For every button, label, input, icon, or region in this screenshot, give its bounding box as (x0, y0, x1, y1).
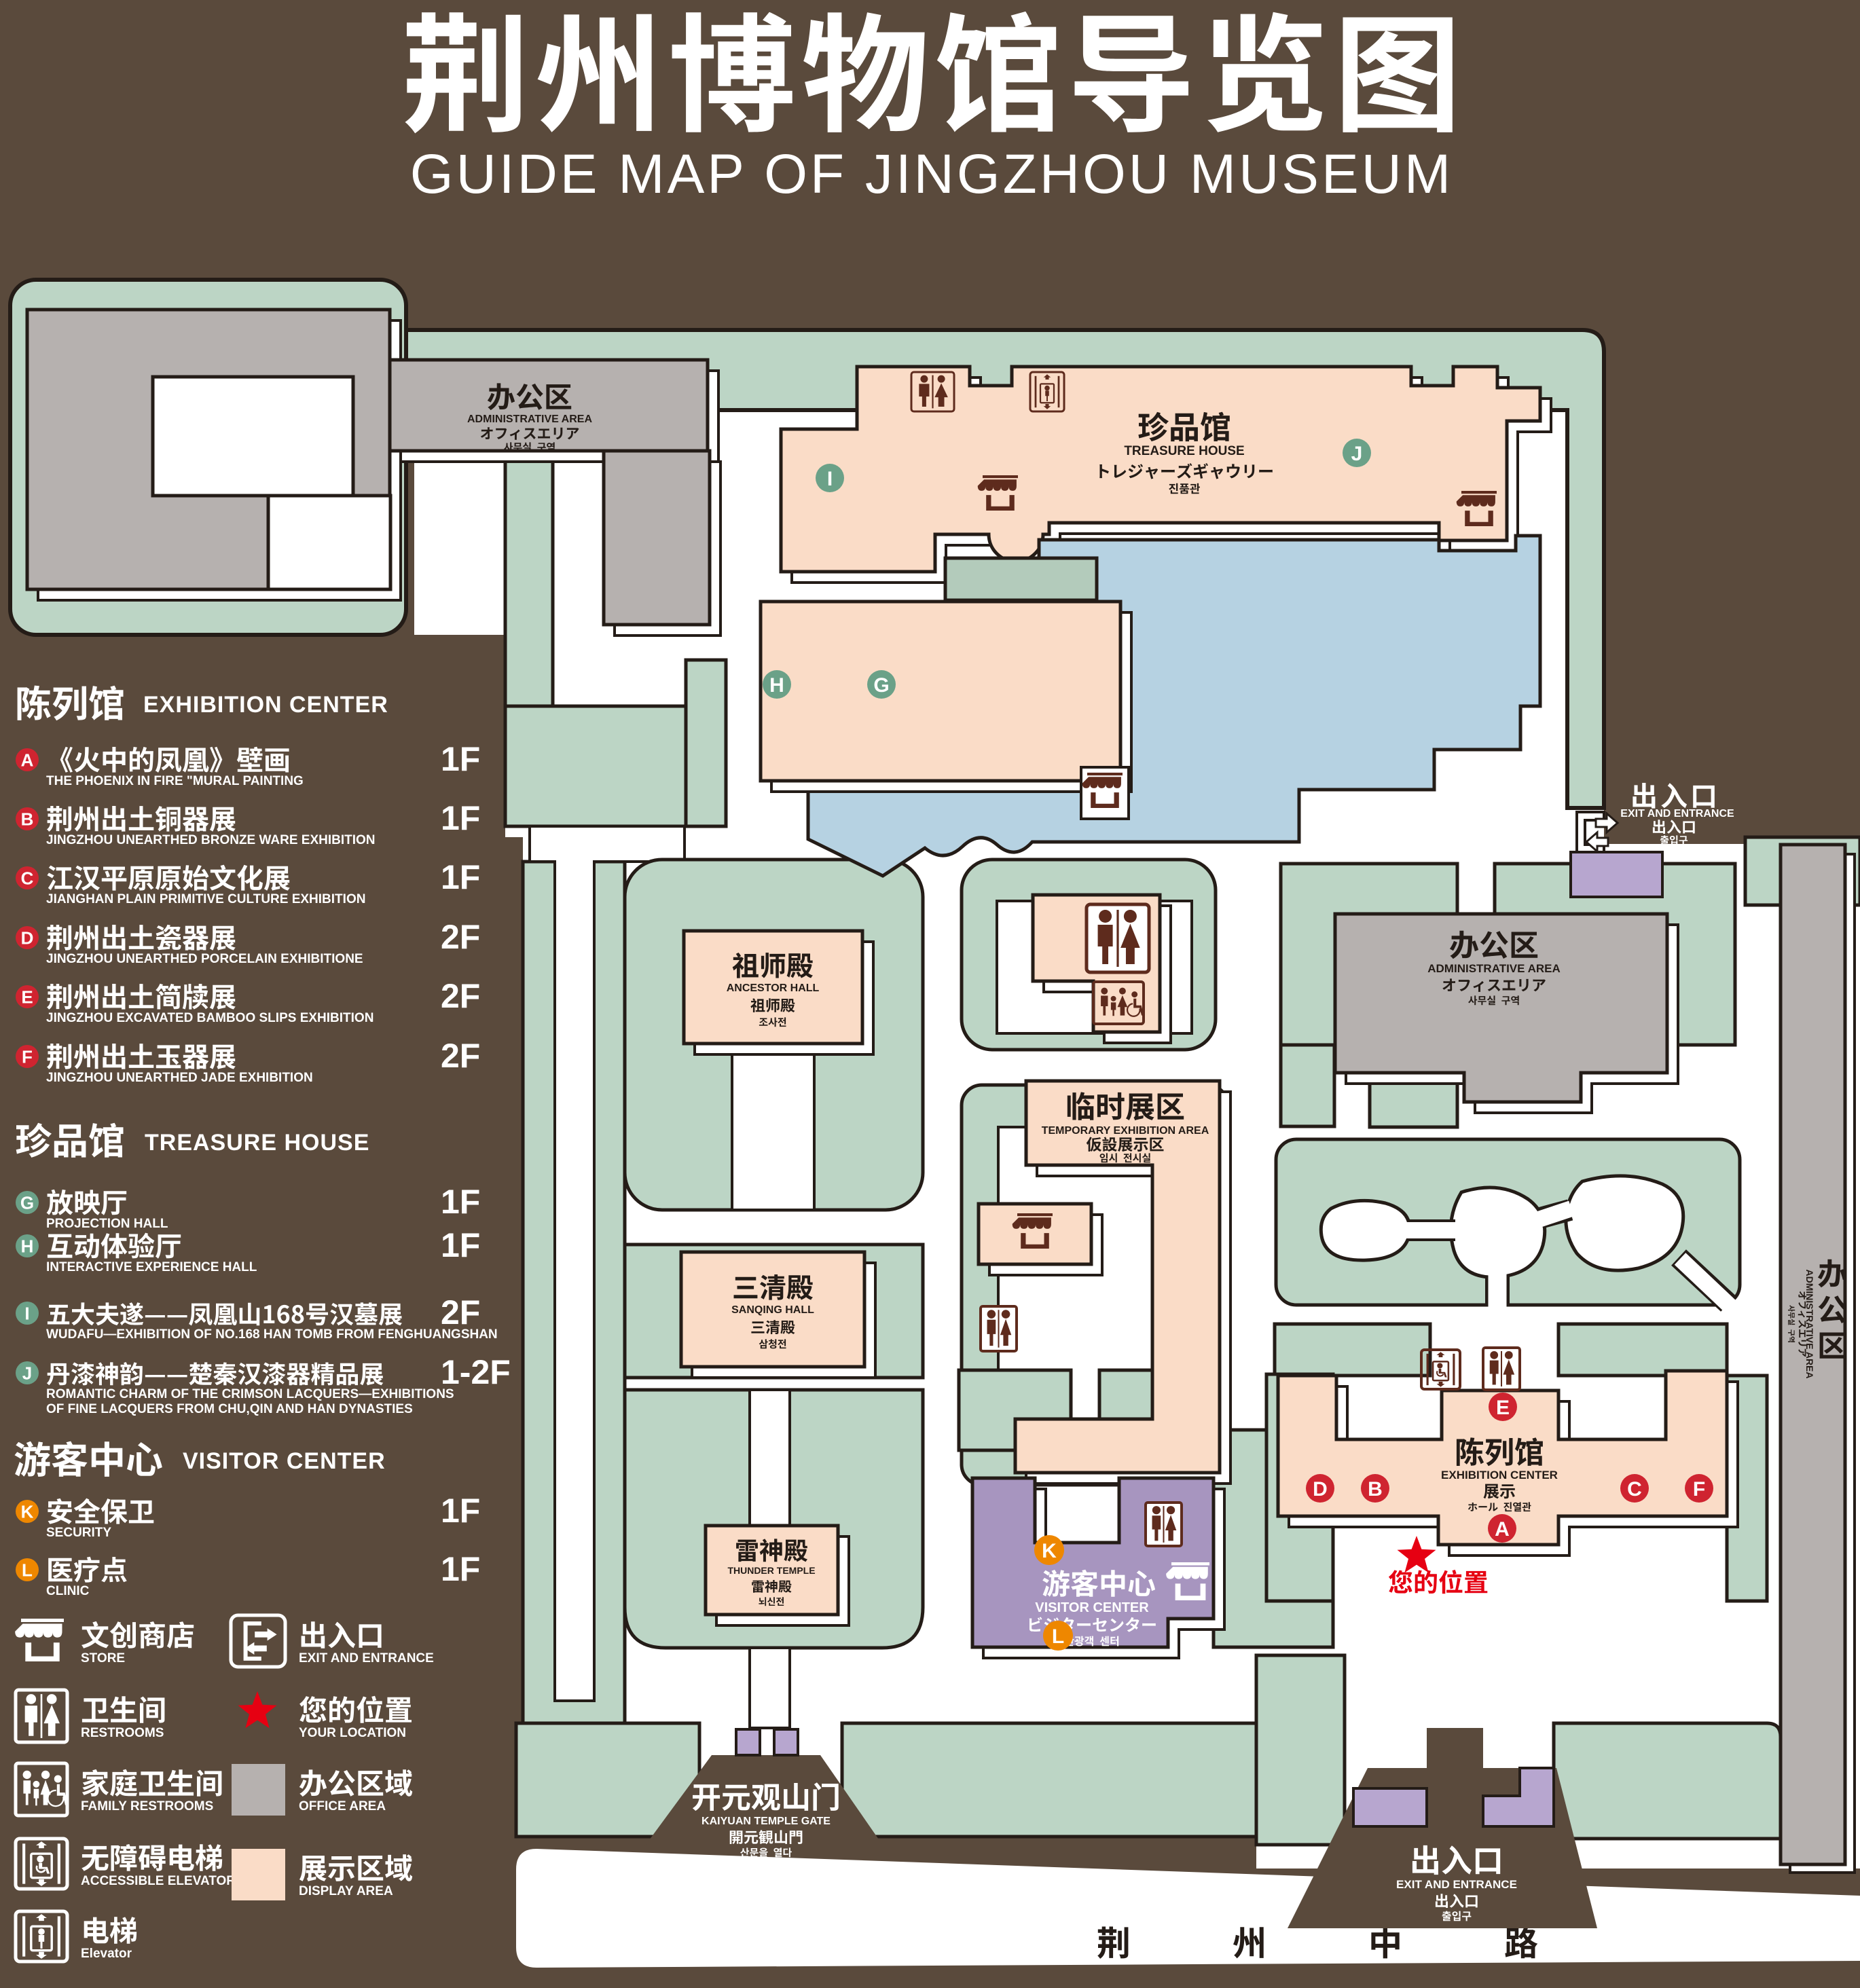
svg-text:EXIT AND ENTRANCE: EXIT AND ENTRANCE (299, 1651, 434, 1665)
svg-text:JINGZHOU UNEARTHED PORCELAIN E: JINGZHOU UNEARTHED PORCELAIN EXHIBITIONE (46, 952, 363, 966)
svg-text:DISPLAY AREA: DISPLAY AREA (299, 1884, 393, 1898)
svg-text:JIANGHAN PLAIN PRIMITIVE CULTU: JIANGHAN PLAIN PRIMITIVE CULTURE EXHIBIT… (46, 892, 365, 906)
svg-text:A: A (21, 750, 34, 770)
svg-text:FAMILY RESTROOMS: FAMILY RESTROOMS (81, 1799, 213, 1814)
svg-text:1F: 1F (441, 858, 480, 896)
svg-text:I: I (827, 468, 833, 490)
svg-text:1F: 1F (441, 740, 480, 778)
svg-text:GUIDE MAP OF JINGZHOU MUSEUM: GUIDE MAP OF JINGZHOU MUSEUM (410, 143, 1453, 205)
svg-text:SECURITY: SECURITY (46, 1526, 111, 1540)
svg-text:I: I (24, 1303, 29, 1323)
svg-text:OF FINE LACQUERS FROM CHU,QIN: OF FINE LACQUERS FROM CHU,QIN AND HAN DY… (46, 1402, 413, 1416)
svg-text:E: E (1496, 1397, 1510, 1419)
svg-text:EXIT AND ENTRANCE: EXIT AND ENTRANCE (1620, 808, 1734, 820)
svg-text:G: G (20, 1192, 34, 1213)
svg-text:KAIYUAN TEMPLE GATE: KAIYUAN TEMPLE GATE (701, 1816, 831, 1827)
svg-text:F: F (22, 1046, 33, 1067)
svg-text:J: J (1351, 443, 1363, 465)
svg-text:EXHIBITION CENTER: EXHIBITION CENTER (1441, 1469, 1558, 1481)
svg-text:1F: 1F (441, 1492, 480, 1530)
svg-text:Elevator: Elevator (81, 1947, 132, 1961)
svg-text:K: K (21, 1501, 34, 1522)
svg-text:L: L (1052, 1625, 1064, 1648)
svg-text:RESTROOMS: RESTROOMS (81, 1726, 164, 1740)
svg-text:EXIT AND ENTRANCE: EXIT AND ENTRANCE (1396, 1878, 1517, 1891)
svg-text:PROJECTION HALL: PROJECTION HALL (46, 1217, 168, 1231)
svg-text:D: D (1313, 1478, 1328, 1501)
svg-text:STORE: STORE (81, 1651, 125, 1665)
svg-text:B: B (21, 809, 34, 829)
svg-text:THUNDER TEMPLE: THUNDER TEMPLE (727, 1565, 815, 1576)
svg-text:2F: 2F (441, 918, 480, 956)
svg-text:2F: 2F (441, 1037, 480, 1075)
svg-text:THE PHOENIX IN FIRE "MURAL PAI: THE PHOENIX IN FIRE "MURAL PAINTING (46, 774, 304, 788)
svg-text:TEMPORARY EXHIBITION AREA: TEMPORARY EXHIBITION AREA (1042, 1125, 1209, 1137)
svg-text:WUDAFU—EXHIBITION OF NO.168 HA: WUDAFU—EXHIBITION OF NO.168 HAN TOMB FRO… (46, 1327, 498, 1342)
svg-text:TREASURE HOUSE: TREASURE HOUSE (1124, 444, 1244, 458)
svg-text:C: C (21, 868, 34, 888)
svg-text:B: B (1368, 1478, 1383, 1501)
svg-text:L: L (22, 1560, 33, 1580)
svg-text:INTERACTIVE EXPERIENCE HALL: INTERACTIVE EXPERIENCE HALL (46, 1260, 257, 1274)
svg-text:F: F (1693, 1478, 1705, 1501)
svg-text:D: D (21, 927, 34, 948)
svg-text:TREASURE HOUSE: TREASURE HOUSE (145, 1130, 369, 1156)
svg-text:2F: 2F (441, 977, 480, 1015)
svg-text:1-2F: 1-2F (441, 1353, 511, 1391)
svg-text:K: K (1042, 1540, 1057, 1562)
svg-text:SANQING HALL: SANQING HALL (731, 1304, 814, 1316)
svg-text:VISITOR CENTER: VISITOR CENTER (183, 1448, 386, 1474)
svg-text:JINGZHOU UNEARTHED BRONZE WARE: JINGZHOU UNEARTHED BRONZE WARE EXHIBITIO… (46, 833, 376, 847)
svg-text:J: J (22, 1363, 32, 1383)
svg-text:OFFICE AREA: OFFICE AREA (299, 1799, 386, 1814)
svg-text:ANCESTOR HALL: ANCESTOR HALL (727, 982, 820, 994)
svg-text:C: C (1627, 1478, 1642, 1501)
svg-text:1F: 1F (441, 1183, 480, 1221)
svg-text:JINGZHOU UNEARTHED JADE EXHIBI: JINGZHOU UNEARTHED JADE EXHIBITION (46, 1071, 313, 1085)
svg-text:ADMINISTRATIVE AREA: ADMINISTRATIVE AREA (1427, 962, 1561, 975)
svg-text:ADMINISTRATIVE AREA: ADMINISTRATIVE AREA (1804, 1270, 1815, 1379)
svg-text:1F: 1F (441, 1226, 480, 1264)
svg-text:1F: 1F (441, 1550, 480, 1588)
svg-text:EXHIBITION CENTER: EXHIBITION CENTER (143, 692, 388, 718)
svg-text:VISITOR CENTER: VISITOR CENTER (1035, 1600, 1149, 1615)
svg-text:ADMINISTRATIVE AREA: ADMINISTRATIVE AREA (467, 413, 592, 425)
svg-text:H: H (769, 674, 784, 697)
svg-text:1F: 1F (441, 799, 480, 837)
svg-text:JINGZHOU EXCAVATED BAMBOO SLIP: JINGZHOU EXCAVATED BAMBOO SLIPS EXHIBITI… (46, 1011, 373, 1025)
svg-text:E: E (21, 987, 33, 1007)
svg-text:YOUR LOCATION: YOUR LOCATION (299, 1726, 406, 1740)
svg-text:G: G (873, 674, 889, 697)
svg-text:ROMANTIC CHARM OF THE CRIMSON: ROMANTIC CHARM OF THE CRIMSON LACQUERS—E… (46, 1387, 454, 1401)
svg-text:CLINIC: CLINIC (46, 1584, 90, 1598)
svg-text:ACCESSIBLE ELEVATOR: ACCESSIBLE ELEVATOR (81, 1874, 236, 1888)
svg-text:H: H (21, 1236, 34, 1256)
svg-text:A: A (1495, 1518, 1510, 1541)
svg-text:2F: 2F (441, 1293, 480, 1331)
